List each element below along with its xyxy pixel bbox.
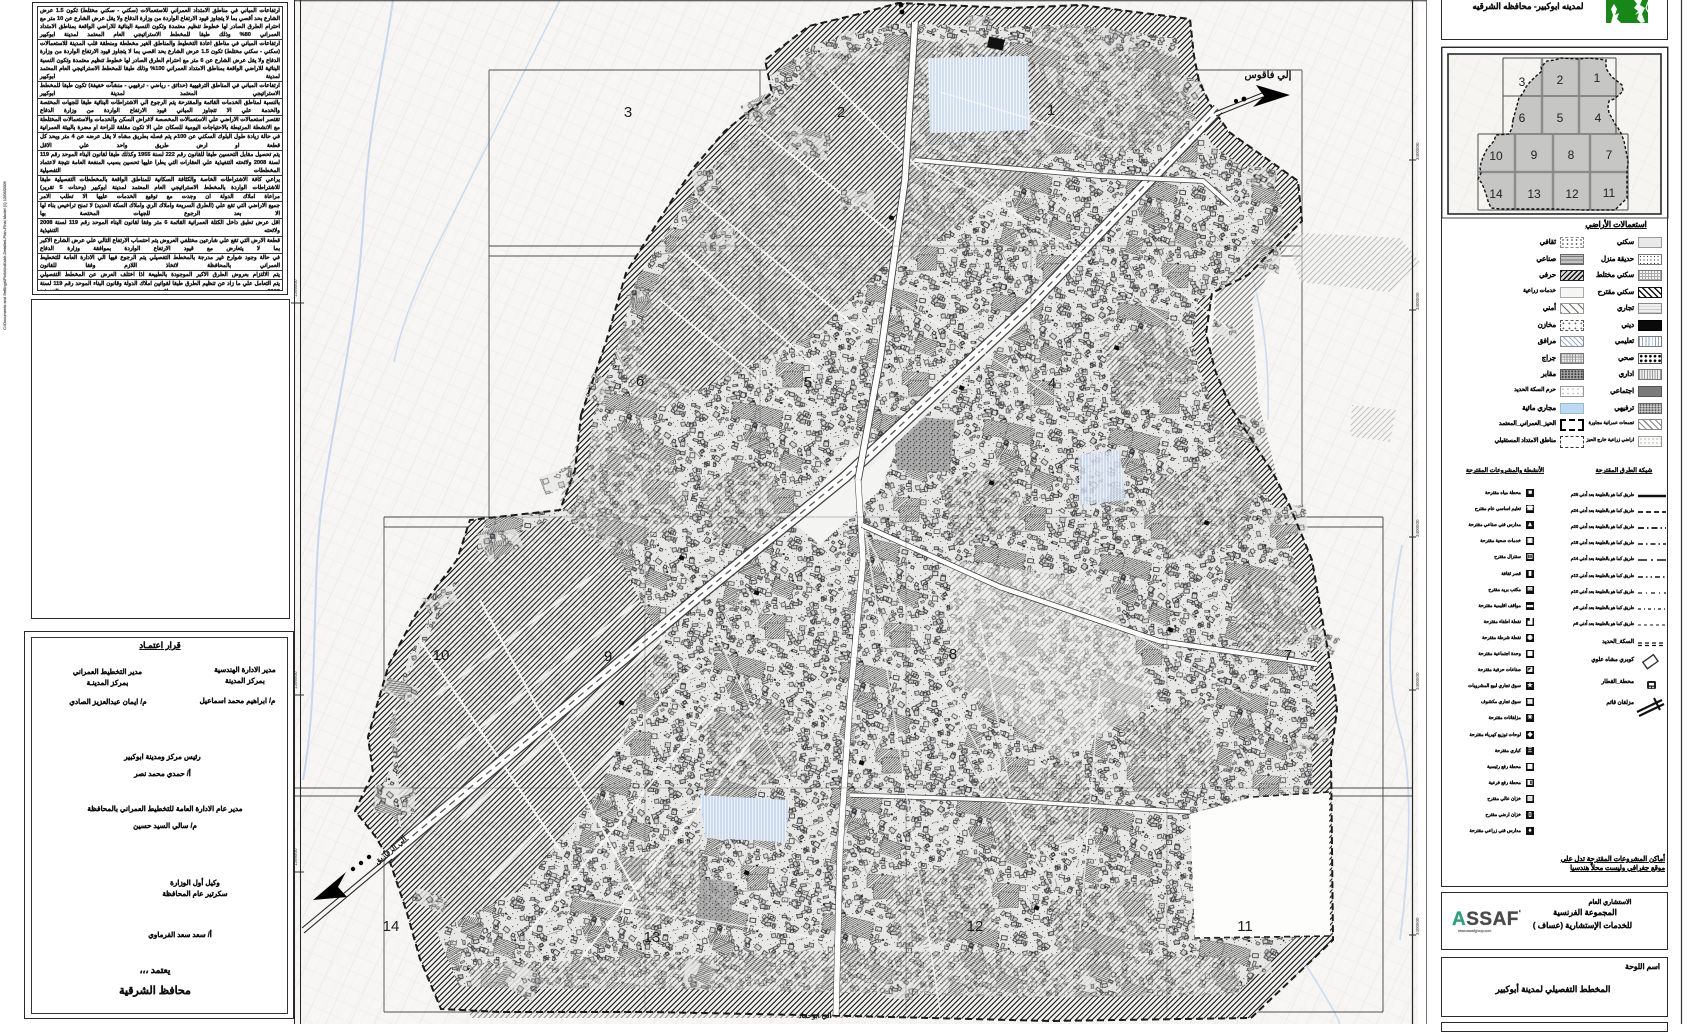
svg-text:2: 2 bbox=[837, 104, 845, 121]
svg-text:3400500: 3400500 bbox=[1415, 142, 1420, 160]
svg-text:3400500: 3400500 bbox=[1415, 519, 1420, 537]
svg-text:9: 9 bbox=[604, 648, 612, 665]
svg-text:3400500: 3400500 bbox=[1415, 917, 1420, 935]
svg-text:إلي فاقوس: إلي فاقوس bbox=[1245, 70, 1292, 81]
svg-text:الي ابوحماد: الي ابوحماد bbox=[799, 1012, 832, 1021]
svg-text:12: 12 bbox=[967, 918, 984, 935]
svg-text:13: 13 bbox=[644, 929, 661, 946]
svg-text:11: 11 bbox=[1237, 918, 1253, 935]
svg-text:8: 8 bbox=[949, 646, 957, 663]
svg-text:4: 4 bbox=[1048, 375, 1056, 392]
svg-text:1: 1 bbox=[1047, 102, 1055, 119]
svg-text:3: 3 bbox=[624, 104, 632, 121]
svg-text:3400500: 3400500 bbox=[1415, 292, 1420, 310]
svg-text:6: 6 bbox=[636, 373, 644, 390]
svg-text:7: 7 bbox=[1284, 647, 1292, 664]
svg-text:14: 14 bbox=[383, 918, 400, 935]
svg-text:5: 5 bbox=[804, 374, 812, 391]
svg-text:3400500: 3400500 bbox=[1415, 672, 1420, 690]
svg-text:10: 10 bbox=[433, 647, 450, 664]
svg-text:1399500: 1399500 bbox=[293, 279, 298, 297]
